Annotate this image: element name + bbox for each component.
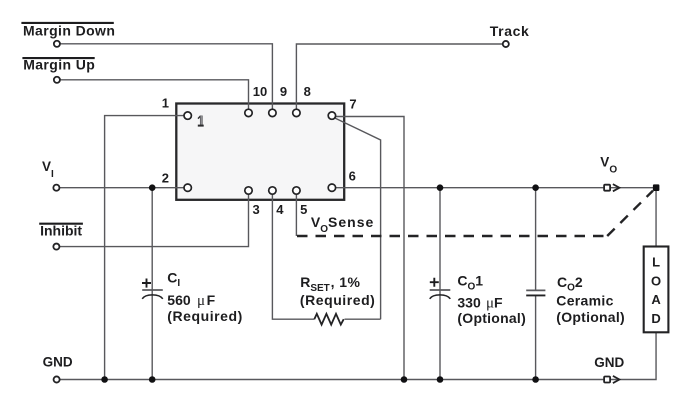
svg-text:(Required): (Required) <box>167 308 243 324</box>
svg-text:8: 8 <box>304 84 311 99</box>
svg-text:9: 9 <box>280 84 287 99</box>
svg-text:Track: Track <box>490 23 530 39</box>
svg-text:Margin Up: Margin Up <box>23 56 95 72</box>
svg-text:Ceramic: Ceramic <box>556 293 613 309</box>
svg-text:6: 6 <box>349 168 356 183</box>
svg-text:(Optional): (Optional) <box>556 309 625 325</box>
svg-text:330μF: 330μF <box>457 295 503 312</box>
svg-text:A: A <box>651 292 661 307</box>
svg-text:4: 4 <box>276 202 284 217</box>
svg-text:3: 3 <box>252 202 259 217</box>
svg-text:O: O <box>651 274 661 289</box>
svg-text:7: 7 <box>349 97 356 112</box>
svg-text:L: L <box>652 255 660 270</box>
svg-text:10: 10 <box>253 84 267 99</box>
svg-text:2: 2 <box>162 171 169 186</box>
svg-text:1: 1 <box>162 96 169 111</box>
svg-text:(Optional): (Optional) <box>457 310 526 326</box>
svg-text:GND: GND <box>594 355 624 370</box>
svg-text:GND: GND <box>43 355 73 370</box>
svg-text:Inhibit: Inhibit <box>40 222 82 238</box>
svg-text:D: D <box>651 311 660 326</box>
svg-text:Margin Down: Margin Down <box>23 23 115 39</box>
svg-text:(Required): (Required) <box>300 292 376 308</box>
svg-text:5: 5 <box>300 202 307 217</box>
